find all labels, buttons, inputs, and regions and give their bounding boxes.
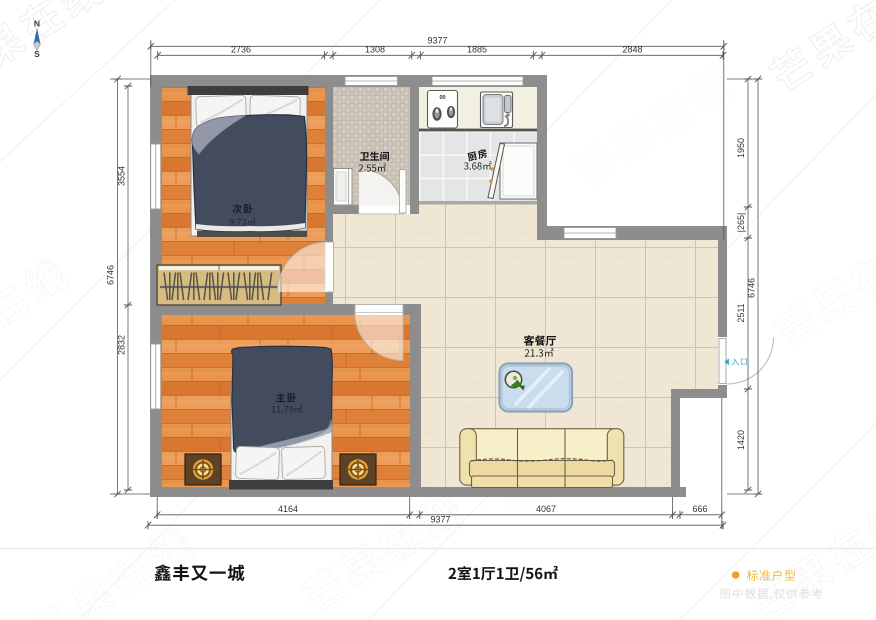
svg-text:1420: 1420 bbox=[736, 430, 746, 450]
svg-text:2511: 2511 bbox=[736, 303, 746, 322]
svg-text:2848: 2848 bbox=[622, 45, 642, 55]
svg-text:6746: 6746 bbox=[747, 278, 757, 298]
svg-text:4067: 4067 bbox=[536, 504, 556, 514]
svg-text:666: 666 bbox=[692, 504, 707, 514]
svg-text:4164: 4164 bbox=[278, 504, 298, 514]
svg-text:|265|: |265| bbox=[736, 213, 746, 233]
svg-text:1885: 1885 bbox=[467, 45, 487, 55]
svg-text:2832: 2832 bbox=[117, 335, 127, 355]
svg-text:3554: 3554 bbox=[117, 166, 127, 186]
svg-text:N: N bbox=[34, 19, 40, 29]
svg-text:2736: 2736 bbox=[231, 45, 251, 55]
svg-text:00: 00 bbox=[439, 95, 445, 101]
svg-text:6746: 6746 bbox=[106, 265, 116, 285]
svg-text:9377: 9377 bbox=[427, 36, 447, 46]
svg-text:9377: 9377 bbox=[430, 515, 450, 525]
svg-text:1950: 1950 bbox=[736, 138, 746, 158]
svg-text:1308: 1308 bbox=[365, 45, 385, 55]
svg-text:S: S bbox=[34, 49, 40, 59]
